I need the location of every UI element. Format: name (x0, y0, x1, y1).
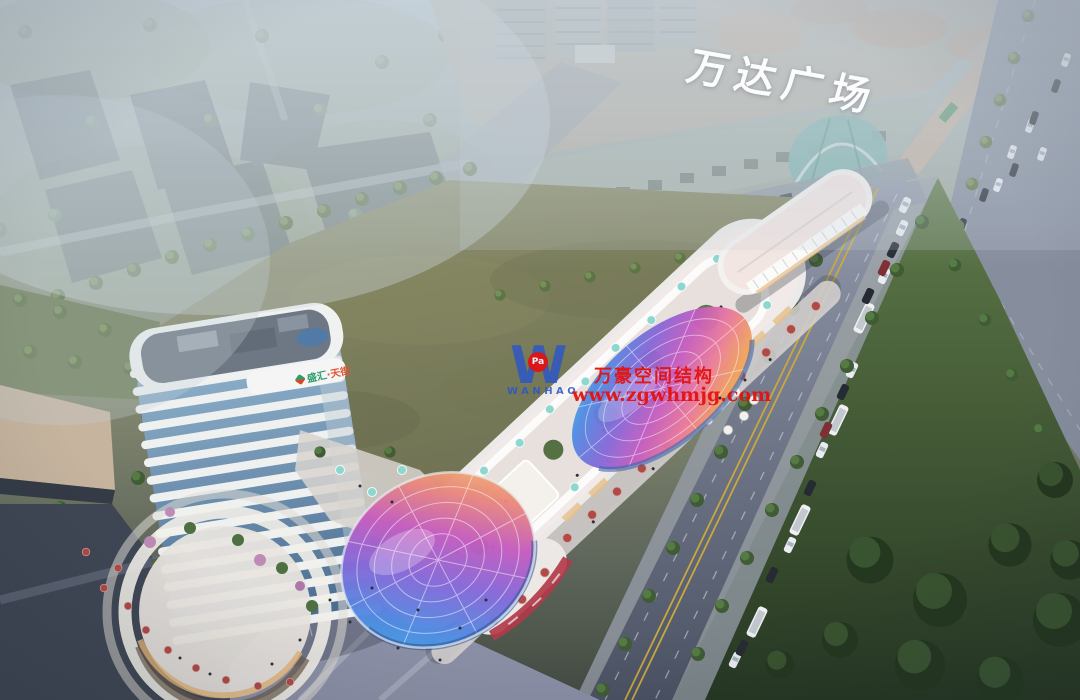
architectural-rendering: 万达广场 盛汇·天街 W Pa WANHAO 万豪空间结构 www.zgwhmj… (0, 0, 1080, 700)
watermark-badge-icon: Pa (528, 352, 548, 372)
watermark-website: www.zgwhmjg.com (572, 384, 771, 406)
watermark-logo-name: WANHAO (507, 386, 579, 397)
tower-logo-mark-icon (295, 374, 306, 385)
